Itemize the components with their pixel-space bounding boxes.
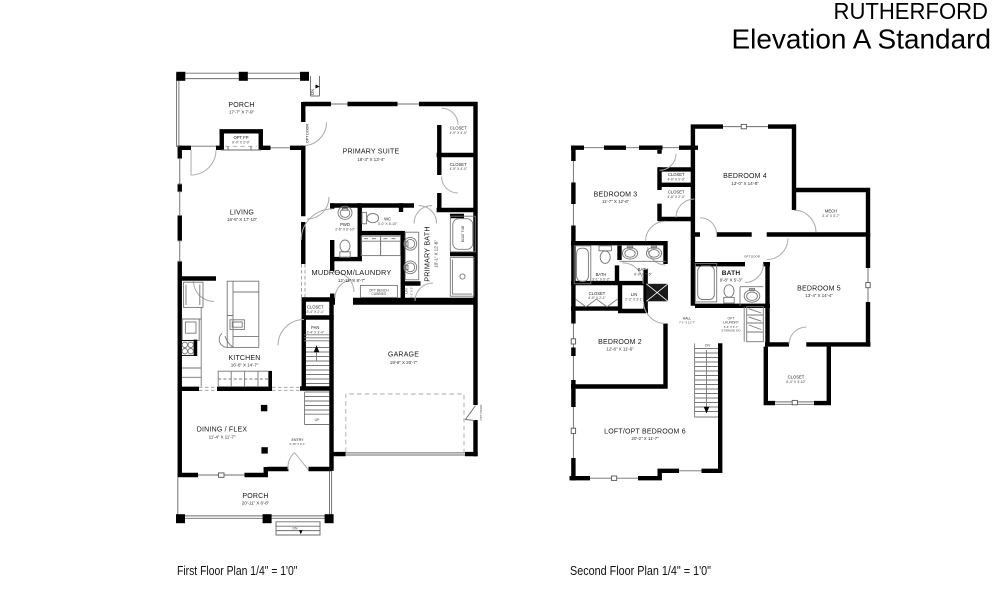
svg-text:8'-0" X 5'-5": 8'-0" X 5'-5" bbox=[634, 272, 652, 276]
svg-text:12'-11" X 8'-7": 12'-11" X 8'-7" bbox=[338, 278, 366, 283]
svg-text:LIVING: LIVING bbox=[230, 209, 254, 216]
svg-text:PORCH: PORCH bbox=[228, 102, 254, 109]
svg-text:2'-2" X 3'-1": 2'-2" X 3'-1" bbox=[625, 298, 643, 302]
svg-text:BOAT TUB: BOAT TUB bbox=[461, 225, 465, 242]
svg-text:CUBBIES: CUBBIES bbox=[371, 292, 387, 296]
svg-text:Second Floor Plan 1/4" = 1'0": Second Floor Plan 1/4" = 1'0" bbox=[570, 564, 711, 578]
svg-text:4'-0" X 2'-1": 4'-0" X 2'-1" bbox=[588, 296, 606, 300]
svg-text:RUTHERFORD: RUTHERFORD bbox=[834, 0, 989, 24]
svg-text:PWD: PWD bbox=[340, 222, 350, 227]
svg-text:PRIMARY BATH: PRIMARY BATH bbox=[422, 226, 431, 282]
svg-text:13'-0" X 14'-8": 13'-0" X 14'-8" bbox=[731, 181, 759, 186]
svg-text:PORCH: PORCH bbox=[242, 493, 268, 500]
svg-text:LOFT/OPT BEDROOM 6: LOFT/OPT BEDROOM 6 bbox=[604, 428, 686, 435]
svg-text:LIN: LIN bbox=[631, 292, 638, 297]
svg-text:17'-7" X 7'-9": 17'-7" X 7'-9" bbox=[229, 109, 255, 114]
svg-text:CLOSET: CLOSET bbox=[589, 291, 606, 296]
svg-text:DN: DN bbox=[705, 343, 710, 347]
svg-text:Elevation A Standard: Elevation A Standard bbox=[732, 24, 992, 55]
svg-text:WC: WC bbox=[384, 217, 391, 222]
svg-text:BATH: BATH bbox=[596, 272, 607, 277]
svg-text:16'-6" X 14'-7": 16'-6" X 14'-7" bbox=[231, 363, 259, 368]
svg-text:OPT DOOR: OPT DOOR bbox=[744, 255, 761, 259]
svg-text:2'-2" X 3'-5": 2'-2" X 3'-5" bbox=[410, 284, 414, 299]
svg-text:BEDROOM 5: BEDROOM 5 bbox=[797, 285, 841, 292]
svg-text:16'-6" X 17'-10": 16'-6" X 17'-10" bbox=[227, 217, 257, 222]
svg-text:CLOSET: CLOSET bbox=[788, 375, 805, 380]
svg-text:DN: DN bbox=[310, 89, 315, 95]
svg-text:19'-8" X 20'-7": 19'-8" X 20'-7" bbox=[390, 360, 418, 365]
svg-text:3'-1" X 6'-2": 3'-1" X 6'-2" bbox=[592, 278, 610, 282]
svg-text:4'-6" X 2'-0": 4'-6" X 2'-0" bbox=[667, 177, 685, 181]
svg-text:6'-10" X 6'-1": 6'-10" X 6'-1" bbox=[289, 442, 305, 446]
svg-text:BEDROOM 3: BEDROOM 3 bbox=[594, 191, 638, 198]
svg-text:20'-2" X 11'-7": 20'-2" X 11'-7" bbox=[631, 436, 659, 441]
svg-text:OPT FP: OPT FP bbox=[233, 135, 248, 140]
svg-text:11'-7" X 12'-6": 11'-7" X 12'-6" bbox=[602, 199, 630, 204]
svg-text:6'-4" X 3'-10": 6'-4" X 3'-10" bbox=[786, 380, 806, 384]
svg-text:3'-4" X 3'-7": 3'-4" X 3'-7" bbox=[822, 214, 840, 218]
svg-text:GARAGE: GARAGE bbox=[388, 351, 419, 358]
svg-text:MECH: MECH bbox=[825, 208, 837, 213]
svg-text:2'-6" X 6'-10": 2'-6" X 6'-10" bbox=[335, 227, 355, 231]
svg-text:PRIMARY SUITE: PRIMARY SUITE bbox=[343, 149, 400, 156]
svg-text:STORAGE O'D: STORAGE O'D bbox=[721, 329, 740, 333]
svg-text:KITCHEN: KITCHEN bbox=[228, 355, 260, 362]
svg-text:10'-1" X 12'-6": 10'-1" X 12'-6" bbox=[434, 240, 439, 268]
svg-text:4'-9" X 4'-0": 4'-9" X 4'-0" bbox=[449, 131, 467, 135]
svg-text:CLOSET: CLOSET bbox=[450, 162, 467, 167]
svg-text:13'-4" X 14'-4": 13'-4" X 14'-4" bbox=[805, 293, 833, 298]
svg-text:3'-4" X 2'-1": 3'-4" X 2'-1" bbox=[306, 310, 324, 314]
svg-text:OPT DOOR: OPT DOOR bbox=[305, 124, 309, 144]
svg-text:OPT DOOR: OPT DOOR bbox=[479, 404, 483, 421]
svg-text:BATH: BATH bbox=[722, 270, 741, 277]
svg-text:4'-6" X 2'-0": 4'-6" X 2'-0" bbox=[667, 195, 685, 199]
svg-text:MUDROOM/LAUNDRY: MUDROOM/LAUNDRY bbox=[311, 268, 391, 277]
svg-text:First Floor Plan 1/4" = 1'0": First Floor Plan 1/4" = 1'0" bbox=[177, 564, 298, 578]
svg-text:CLOSET: CLOSET bbox=[668, 172, 685, 177]
svg-text:4'-9" X 4'-0": 4'-9" X 4'-0" bbox=[449, 167, 467, 171]
svg-text:9'-8" X 5'-3": 9'-8" X 5'-3" bbox=[720, 278, 743, 283]
svg-text:BEDROOM 4: BEDROOM 4 bbox=[723, 173, 767, 180]
svg-text:3'-4" X 3'-4": 3'-4" X 3'-4" bbox=[306, 330, 324, 334]
svg-text:3'-0" X 6'-10": 3'-0" X 6'-10" bbox=[378, 222, 398, 226]
svg-text:BEDROOM 2: BEDROOM 2 bbox=[598, 339, 642, 346]
svg-text:CLOSET: CLOSET bbox=[307, 305, 324, 310]
svg-text:18'-3" X 13'-4": 18'-3" X 13'-4" bbox=[357, 157, 385, 162]
svg-text:DN: DN bbox=[293, 527, 298, 531]
svg-text:CLOSET: CLOSET bbox=[668, 190, 685, 195]
svg-text:12'-6" X 11'-6": 12'-6" X 11'-6" bbox=[606, 347, 634, 352]
svg-text:6'-0" X 2'-0": 6'-0" X 2'-0" bbox=[232, 141, 250, 145]
svg-text:7'-1" X 12'-7": 7'-1" X 12'-7" bbox=[679, 320, 695, 324]
svg-text:DINING / FLEX: DINING / FLEX bbox=[197, 427, 248, 434]
svg-text:11'-4" X 11'-7": 11'-4" X 11'-7" bbox=[209, 434, 236, 439]
svg-text:LIN: LIN bbox=[405, 288, 409, 294]
svg-text:BATH: BATH bbox=[638, 267, 649, 272]
svg-text:UP: UP bbox=[315, 418, 320, 422]
svg-text:PAN: PAN bbox=[311, 325, 319, 330]
svg-text:20'-11" X 6'-8": 20'-11" X 6'-8" bbox=[242, 500, 270, 505]
svg-text:CLOSET: CLOSET bbox=[450, 126, 467, 131]
